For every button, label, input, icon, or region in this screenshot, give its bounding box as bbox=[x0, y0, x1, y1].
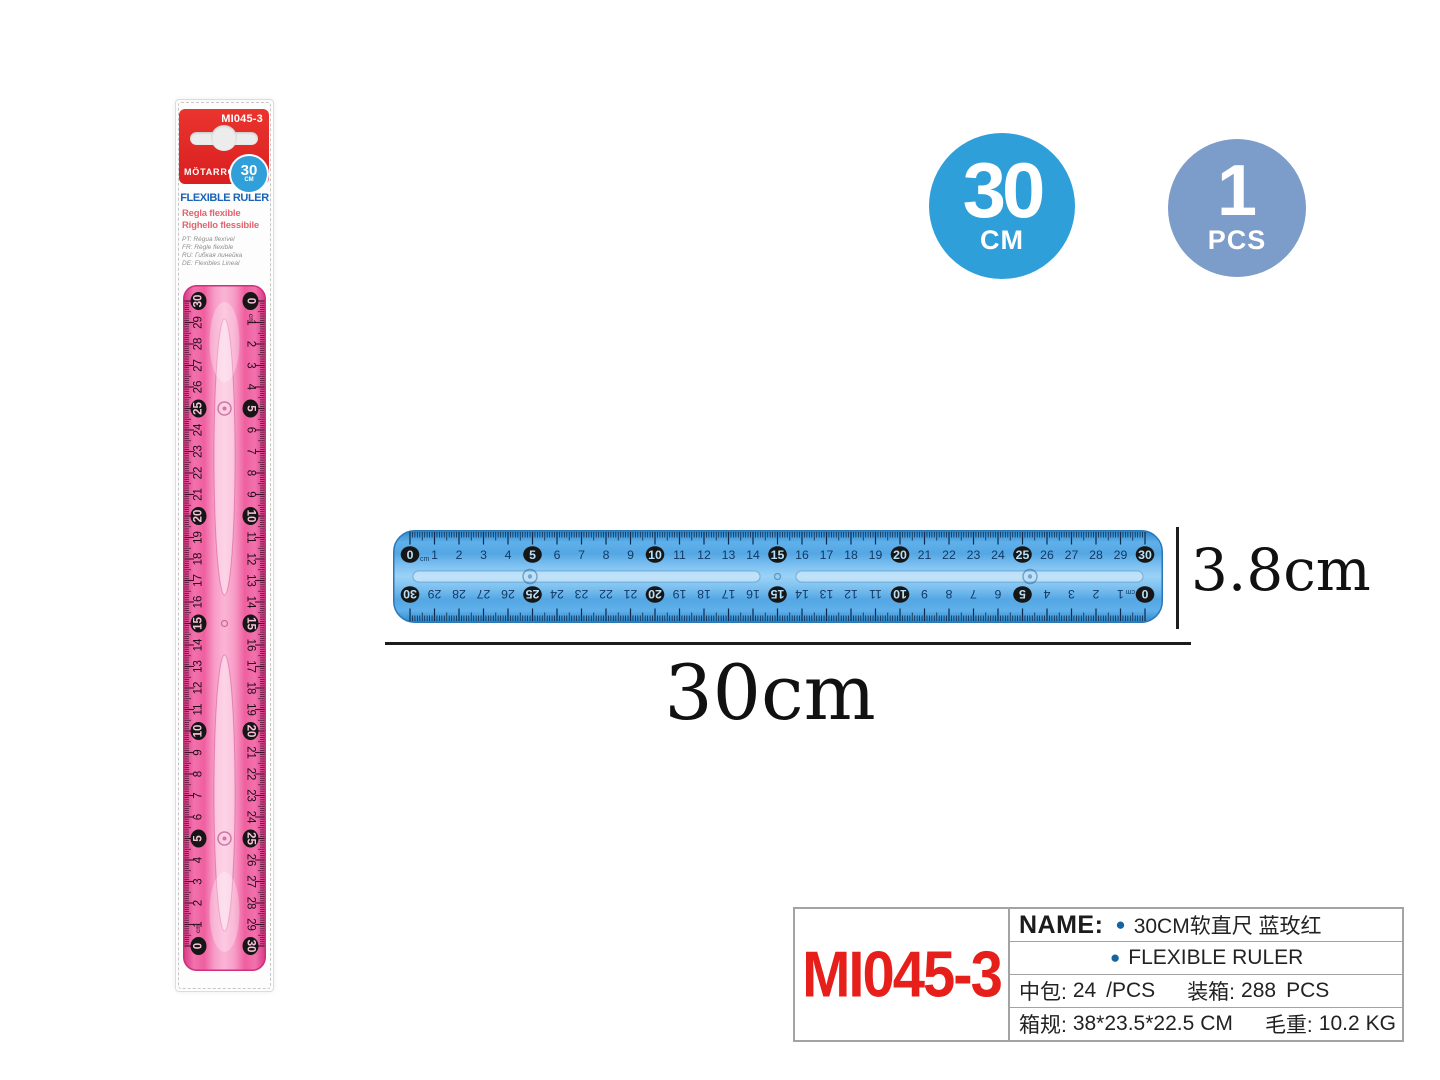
model-cell: MI045-3 bbox=[795, 909, 1010, 1040]
svg-text:28: 28 bbox=[245, 897, 257, 910]
width-dimension-label: 3.8cm bbox=[1191, 536, 1371, 604]
svg-text:7: 7 bbox=[578, 548, 585, 562]
svg-text:21: 21 bbox=[918, 548, 932, 562]
package-size-unit: CM bbox=[244, 177, 253, 184]
width-dimension-line bbox=[1176, 527, 1179, 629]
svg-text:6: 6 bbox=[245, 427, 257, 433]
svg-text:cm: cm bbox=[1126, 588, 1136, 595]
svg-text:8: 8 bbox=[603, 548, 610, 562]
svg-text:30: 30 bbox=[245, 940, 257, 953]
svg-text:4: 4 bbox=[245, 384, 257, 391]
language-line: FR: Règle flexible bbox=[182, 244, 242, 252]
svg-text:12: 12 bbox=[844, 587, 858, 601]
carton-qty-label: 装箱: bbox=[1187, 976, 1235, 1006]
inner-pack-unit: /PCS bbox=[1106, 979, 1155, 1003]
svg-text:15: 15 bbox=[771, 587, 785, 601]
svg-text:24: 24 bbox=[550, 587, 564, 601]
package-header-card: MI045-3 MÖTARRO® 30 CM bbox=[179, 109, 269, 184]
svg-text:29: 29 bbox=[193, 316, 205, 329]
svg-text:cm: cm bbox=[247, 314, 254, 323]
svg-text:5: 5 bbox=[245, 405, 257, 412]
svg-text:29: 29 bbox=[245, 918, 257, 931]
svg-text:30: 30 bbox=[403, 587, 417, 601]
svg-text:22: 22 bbox=[942, 548, 956, 562]
svg-text:14: 14 bbox=[245, 596, 257, 609]
svg-text:23: 23 bbox=[575, 587, 589, 601]
svg-text:16: 16 bbox=[746, 587, 760, 601]
svg-text:27: 27 bbox=[477, 587, 491, 601]
svg-text:21: 21 bbox=[193, 488, 205, 501]
svg-text:19: 19 bbox=[673, 587, 687, 601]
svg-text:15: 15 bbox=[771, 548, 785, 562]
svg-text:7: 7 bbox=[245, 448, 257, 454]
svg-text:29: 29 bbox=[428, 587, 442, 601]
svg-text:20: 20 bbox=[893, 548, 907, 562]
package-language-lines: PT: Régua flexível FR: Règle flexible RU… bbox=[182, 236, 242, 268]
package-subtitle-es: Regla flexible bbox=[182, 208, 240, 219]
svg-text:9: 9 bbox=[921, 587, 928, 601]
inner-pack-label: 中包: bbox=[1019, 976, 1067, 1006]
svg-text:22: 22 bbox=[599, 587, 613, 601]
svg-text:26: 26 bbox=[1040, 548, 1054, 562]
svg-text:23: 23 bbox=[967, 548, 981, 562]
svg-text:27: 27 bbox=[193, 359, 205, 372]
svg-text:25: 25 bbox=[193, 402, 205, 415]
pink-ruler: 0011223344556677889910101111121213131414… bbox=[183, 285, 266, 971]
svg-text:13: 13 bbox=[245, 574, 257, 587]
quantity-badge: 1 PCS bbox=[1168, 139, 1306, 277]
svg-text:3: 3 bbox=[193, 878, 205, 884]
svg-text:26: 26 bbox=[501, 587, 515, 601]
svg-text:2: 2 bbox=[456, 548, 463, 562]
product-info-table: MI045-3 NAME: ● 30CM软直尺 蓝玫红 ● FLEXIBLE R… bbox=[793, 907, 1404, 1042]
svg-text:cm: cm bbox=[420, 556, 430, 563]
svg-text:20: 20 bbox=[648, 587, 662, 601]
table-row-name-en: ● FLEXIBLE RULER bbox=[1010, 942, 1402, 975]
size-badge-unit: CM bbox=[980, 225, 1024, 256]
size-badge: 30 CM bbox=[929, 133, 1075, 279]
svg-text:27: 27 bbox=[245, 875, 257, 888]
svg-text:6: 6 bbox=[193, 814, 205, 820]
svg-text:10: 10 bbox=[245, 510, 257, 523]
gross-weight-label: 毛重: bbox=[1265, 1009, 1313, 1039]
svg-text:19: 19 bbox=[869, 548, 883, 562]
length-dimension-line bbox=[385, 642, 1191, 645]
svg-text:14: 14 bbox=[193, 638, 205, 651]
svg-text:17: 17 bbox=[722, 587, 736, 601]
carton-size-label: 箱规: bbox=[1019, 1009, 1067, 1039]
svg-text:22: 22 bbox=[245, 768, 257, 781]
package-size-value: 30 bbox=[241, 164, 258, 177]
svg-text:10: 10 bbox=[193, 725, 205, 738]
svg-text:0: 0 bbox=[245, 298, 257, 304]
svg-text:12: 12 bbox=[193, 682, 205, 695]
svg-text:17: 17 bbox=[245, 660, 257, 673]
svg-text:13: 13 bbox=[722, 548, 736, 562]
svg-text:18: 18 bbox=[844, 548, 858, 562]
svg-text:5: 5 bbox=[1019, 587, 1026, 601]
svg-text:6: 6 bbox=[554, 548, 561, 562]
svg-text:19: 19 bbox=[245, 703, 257, 716]
svg-text:14: 14 bbox=[746, 548, 760, 562]
svg-text:3: 3 bbox=[1068, 587, 1075, 601]
svg-text:16: 16 bbox=[795, 548, 809, 562]
hang-hole-circle bbox=[211, 125, 237, 151]
language-line: RU: Гибкая линейка bbox=[182, 252, 242, 260]
svg-text:8: 8 bbox=[193, 771, 205, 777]
svg-text:24: 24 bbox=[245, 811, 257, 824]
svg-text:30: 30 bbox=[193, 295, 205, 308]
carton-qty-unit: PCS bbox=[1286, 979, 1329, 1003]
svg-text:2: 2 bbox=[1092, 587, 1099, 601]
svg-text:10: 10 bbox=[648, 548, 662, 562]
svg-text:10: 10 bbox=[893, 587, 907, 601]
carton-qty-value: 288 bbox=[1241, 979, 1276, 1003]
svg-text:28: 28 bbox=[452, 587, 466, 601]
carton-size-value: 38*23.5*22.5 bbox=[1073, 1012, 1194, 1036]
bullet-icon: ● bbox=[1110, 948, 1120, 968]
svg-text:24: 24 bbox=[991, 548, 1005, 562]
svg-text:6: 6 bbox=[994, 587, 1001, 601]
product-name-en: FLEXIBLE RULER bbox=[1128, 946, 1303, 970]
svg-text:4: 4 bbox=[505, 548, 512, 562]
svg-text:18: 18 bbox=[245, 682, 257, 695]
svg-text:9: 9 bbox=[245, 491, 257, 497]
svg-text:8: 8 bbox=[245, 470, 257, 476]
svg-text:16: 16 bbox=[193, 596, 205, 609]
model-number: MI045-3 bbox=[802, 937, 1001, 1012]
bullet-icon: ● bbox=[1115, 915, 1125, 935]
svg-text:4: 4 bbox=[1043, 587, 1050, 601]
svg-text:23: 23 bbox=[193, 445, 205, 458]
svg-text:21: 21 bbox=[624, 587, 638, 601]
table-row-carton: 箱规: 38*23.5*22.5 CM 毛重: 10.2 KG bbox=[1010, 1008, 1402, 1040]
svg-text:14: 14 bbox=[795, 587, 809, 601]
svg-text:29: 29 bbox=[1114, 548, 1128, 562]
svg-text:4: 4 bbox=[193, 856, 205, 863]
length-dimension-label: 30cm bbox=[570, 648, 970, 737]
gross-weight-value: 10.2 bbox=[1319, 1012, 1360, 1036]
name-label: NAME: bbox=[1019, 911, 1103, 940]
svg-text:28: 28 bbox=[193, 338, 205, 351]
package-size-badge: 30 CM bbox=[229, 154, 269, 194]
svg-text:8: 8 bbox=[945, 587, 952, 601]
svg-text:22: 22 bbox=[193, 467, 205, 480]
inner-pack-value: 24 bbox=[1073, 979, 1096, 1003]
svg-text:26: 26 bbox=[245, 854, 257, 867]
svg-text:5: 5 bbox=[193, 835, 205, 842]
product-name-cn: 30CM软直尺 蓝玫红 bbox=[1134, 910, 1322, 940]
carton-size-unit: CM bbox=[1200, 1012, 1233, 1036]
svg-text:5: 5 bbox=[529, 548, 536, 562]
svg-text:20: 20 bbox=[245, 725, 257, 738]
svg-text:1: 1 bbox=[431, 548, 438, 562]
quantity-badge-value: 1 bbox=[1217, 160, 1257, 223]
spec-rows: NAME: ● 30CM软直尺 蓝玫红 ● FLEXIBLE RULER 中包:… bbox=[1010, 909, 1402, 1040]
svg-text:25: 25 bbox=[1016, 548, 1030, 562]
svg-text:7: 7 bbox=[193, 792, 205, 798]
svg-text:19: 19 bbox=[193, 531, 205, 544]
svg-text:cm: cm bbox=[195, 924, 202, 933]
svg-text:2: 2 bbox=[245, 341, 257, 347]
blister-package: MI045-3 MÖTARRO® 30 CM FLEXIBLE RULER Re… bbox=[175, 99, 274, 992]
svg-text:1: 1 bbox=[1117, 587, 1124, 601]
svg-text:24: 24 bbox=[193, 423, 205, 436]
gross-weight-unit: KG bbox=[1366, 1012, 1396, 1036]
svg-text:2: 2 bbox=[193, 900, 205, 906]
blue-ruler: 0011223344556677889910101111121213131414… bbox=[393, 530, 1163, 623]
svg-text:11: 11 bbox=[193, 704, 205, 716]
table-row-packing: 中包: 24 /PCS 装箱: 288 PCS bbox=[1010, 975, 1402, 1008]
svg-text:12: 12 bbox=[245, 553, 257, 566]
svg-text:11: 11 bbox=[245, 532, 257, 544]
svg-text:15: 15 bbox=[193, 617, 205, 630]
svg-text:28: 28 bbox=[1089, 548, 1103, 562]
svg-text:12: 12 bbox=[697, 548, 711, 562]
svg-text:3: 3 bbox=[245, 362, 257, 368]
svg-text:23: 23 bbox=[245, 789, 257, 802]
svg-text:18: 18 bbox=[193, 553, 205, 566]
svg-text:9: 9 bbox=[627, 548, 634, 562]
svg-text:26: 26 bbox=[193, 381, 205, 394]
svg-text:11: 11 bbox=[869, 587, 882, 601]
language-line: PT: Régua flexível bbox=[182, 236, 242, 244]
svg-text:15: 15 bbox=[245, 617, 257, 630]
svg-text:0: 0 bbox=[1141, 587, 1148, 601]
svg-text:0: 0 bbox=[193, 943, 205, 949]
package-subtitle-it: Righello flessibile bbox=[182, 220, 259, 231]
svg-text:30: 30 bbox=[1138, 548, 1152, 562]
svg-text:13: 13 bbox=[820, 587, 834, 601]
svg-text:9: 9 bbox=[193, 749, 205, 755]
svg-text:21: 21 bbox=[245, 746, 257, 759]
svg-text:25: 25 bbox=[245, 832, 257, 845]
svg-text:17: 17 bbox=[193, 574, 205, 587]
svg-text:13: 13 bbox=[193, 660, 205, 673]
svg-text:7: 7 bbox=[970, 587, 977, 601]
svg-text:16: 16 bbox=[245, 639, 257, 652]
svg-text:0: 0 bbox=[407, 548, 414, 562]
table-row-name-cn: NAME: ● 30CM软直尺 蓝玫红 bbox=[1010, 909, 1402, 942]
svg-text:18: 18 bbox=[697, 587, 711, 601]
svg-text:3: 3 bbox=[480, 548, 487, 562]
quantity-badge-unit: PCS bbox=[1208, 225, 1267, 256]
size-badge-value: 30 bbox=[963, 156, 1042, 225]
svg-text:27: 27 bbox=[1065, 548, 1079, 562]
svg-text:20: 20 bbox=[193, 510, 205, 523]
language-line: DE: Flexibles Lineal bbox=[182, 260, 242, 268]
svg-text:17: 17 bbox=[820, 548, 834, 562]
package-title: FLEXIBLE RULER bbox=[180, 192, 269, 204]
svg-text:25: 25 bbox=[526, 587, 540, 601]
svg-text:11: 11 bbox=[673, 548, 686, 562]
